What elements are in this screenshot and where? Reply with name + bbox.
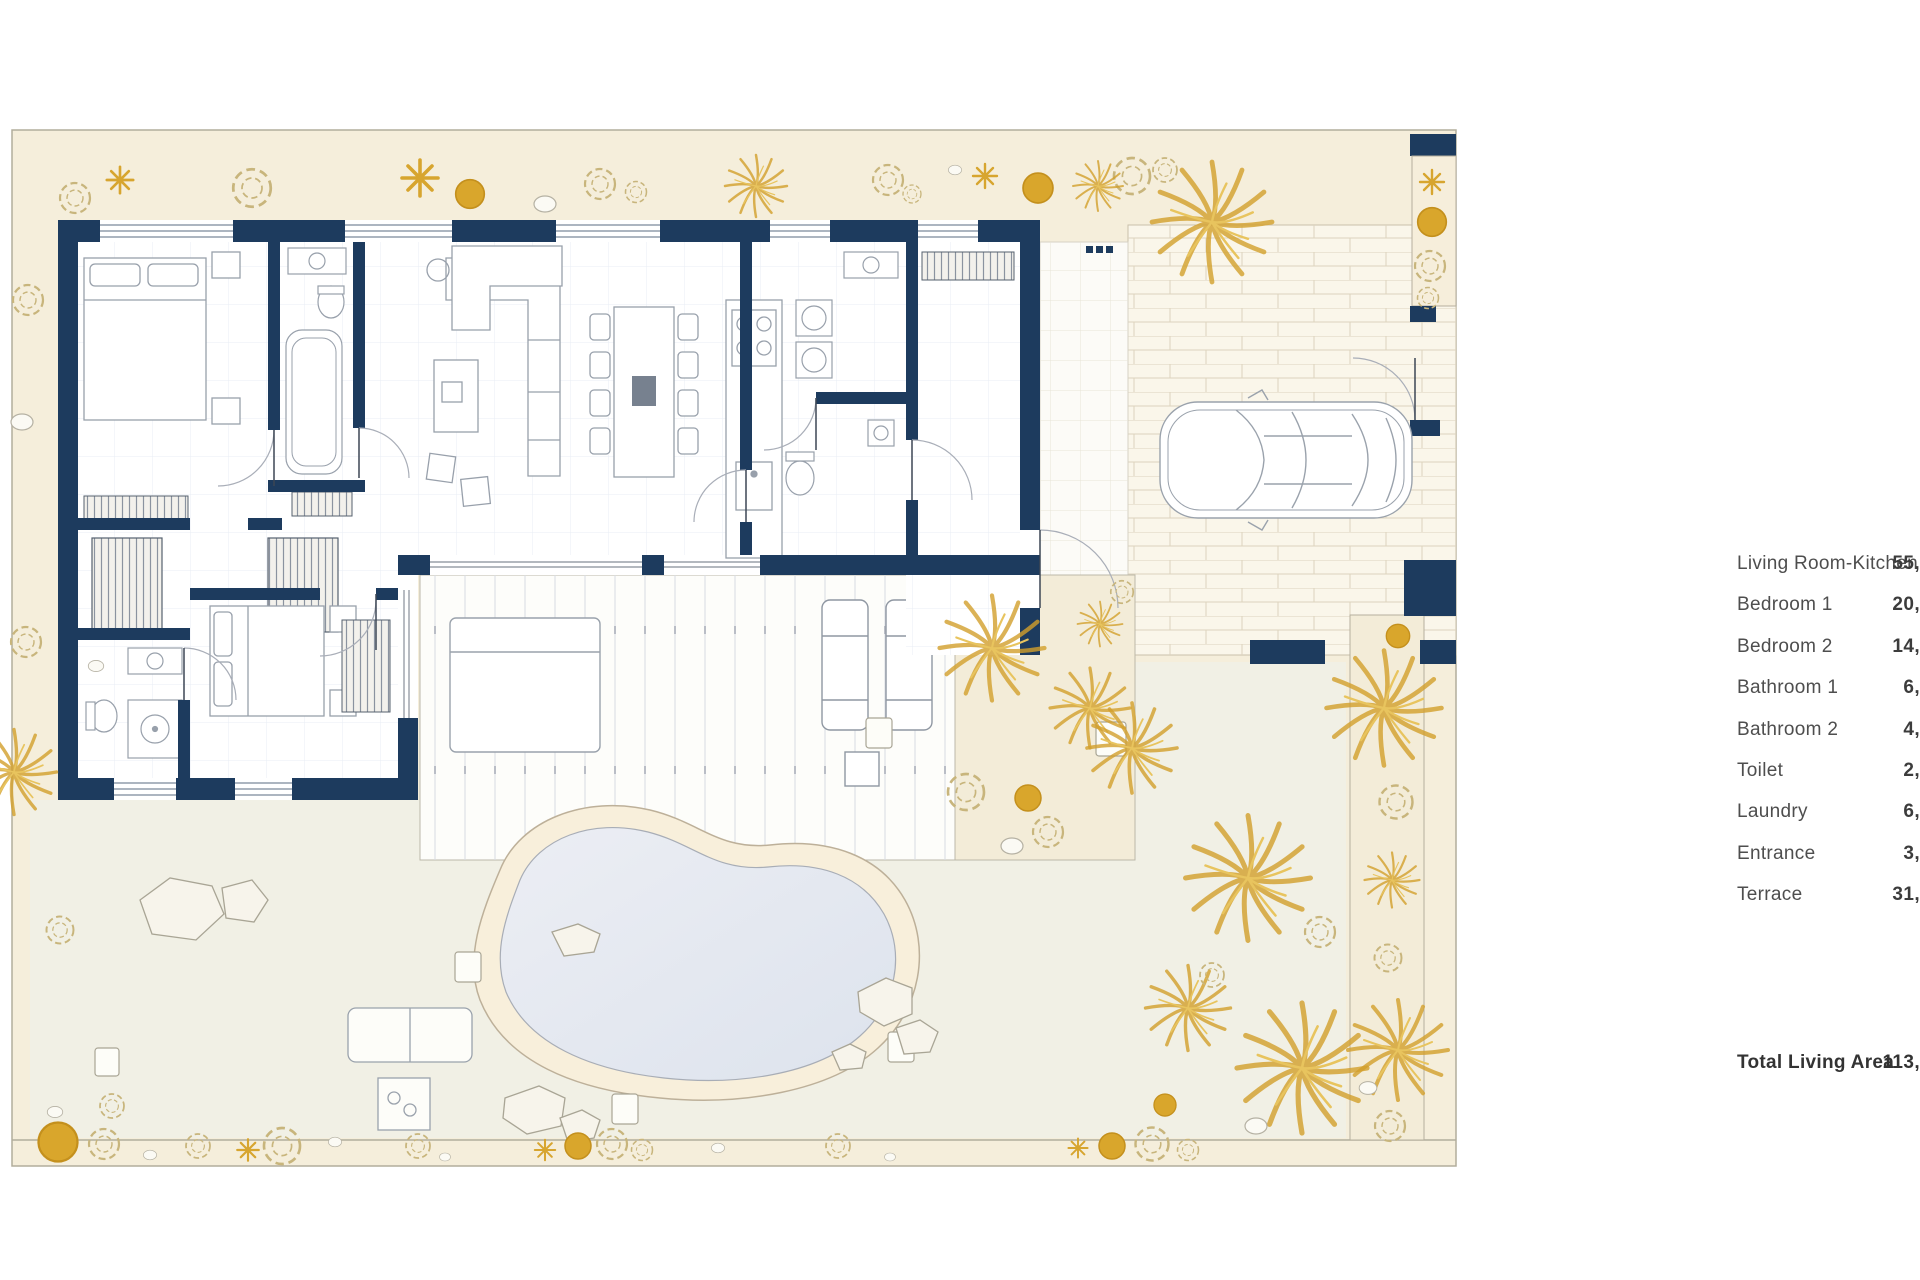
dining-table xyxy=(590,307,698,477)
wardrobe xyxy=(342,620,390,712)
car xyxy=(1160,390,1412,530)
kitchen-island xyxy=(726,300,782,558)
deck-daybed xyxy=(450,618,600,752)
desk xyxy=(434,360,478,432)
side-table xyxy=(378,1078,430,1130)
floor-plan-drawing xyxy=(0,0,1920,1280)
floor-plan-canvas xyxy=(0,0,1920,1280)
radiator xyxy=(292,492,352,516)
entry-closet xyxy=(922,252,1014,280)
bedroom-2 xyxy=(210,606,390,716)
